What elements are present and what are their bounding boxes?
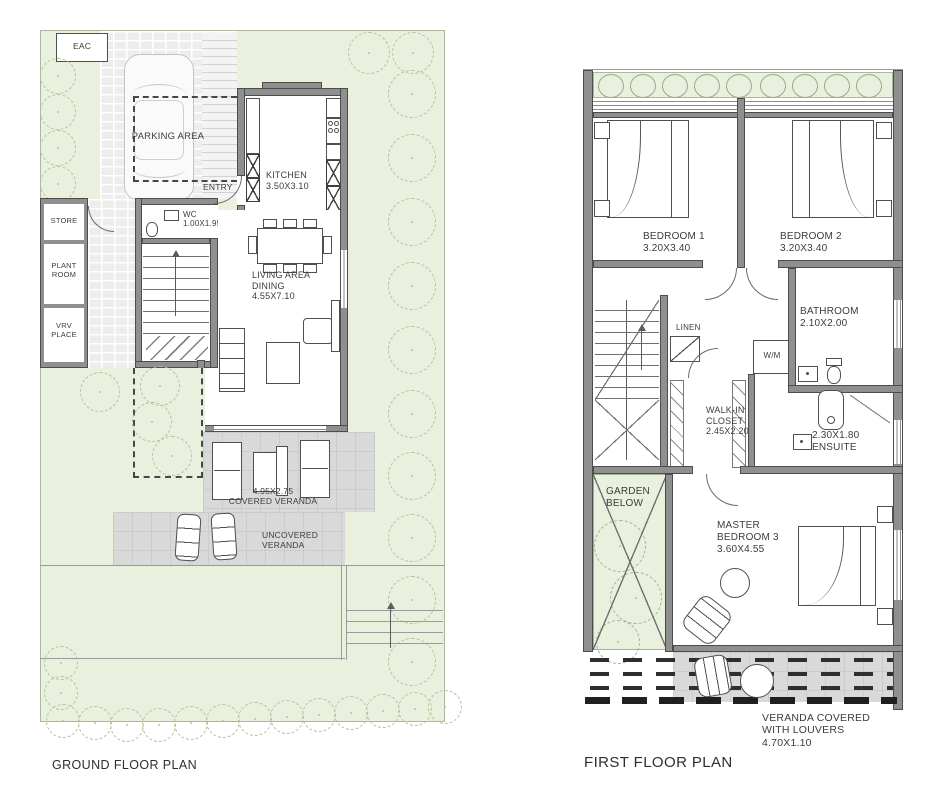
tree-icon (40, 58, 76, 94)
ff-bedroom-divider-wall (737, 98, 745, 268)
wm-label: W/M (757, 351, 787, 360)
louver-dashes (590, 658, 893, 662)
veranda-chair-icon (693, 653, 733, 698)
veranda-louvers-label: VERANDA COVERED WITH LOUVERS4.70X1.10 (762, 712, 887, 749)
tree-icon (388, 326, 436, 374)
tree-icon (388, 70, 436, 118)
louver-edge-dashes (585, 697, 897, 704)
living-south-glass (214, 426, 326, 431)
hob-burner (328, 121, 333, 126)
eac-label: EAC (56, 41, 108, 51)
first-floor-title: FIRST FLOOR PLAN (584, 754, 733, 771)
bed-foot-line (671, 121, 672, 217)
ff-stair-flight-line (595, 300, 659, 400)
kitchen-fridge-icon (326, 160, 341, 186)
parking-area-label: PARKING AREA (120, 131, 216, 142)
terrace-edge-line2 (40, 658, 345, 659)
shrub-icon (630, 74, 656, 98)
armchair-line (302, 468, 328, 469)
ff-hall-wall (593, 260, 703, 268)
shrub-icon (856, 74, 882, 98)
tree-icon (388, 390, 436, 438)
ensuite-window (894, 420, 902, 464)
nightstand-icon (876, 200, 892, 217)
master-north-wall2 (740, 466, 903, 474)
bedroom1-label: BEDROOM 13.20X3.40 (643, 231, 723, 255)
tree-icon (142, 708, 176, 742)
tree-icon (40, 130, 76, 166)
kitchen-west-wall (237, 88, 245, 176)
master-bedroom-label: MASTER BEDROOM 33.60X4.55 (717, 520, 799, 555)
bed-foot-line (809, 121, 810, 217)
wing-west-wall (135, 198, 142, 368)
outdoor-stair-arrow (390, 608, 391, 648)
floor-plan-sheet: EAC PARKING AREA STORE PLANT ROOM VRV PL… (0, 0, 941, 787)
tree-icon (80, 372, 120, 412)
ground-floor-title: GROUND FLOOR PLAN (52, 758, 197, 772)
nightstand-icon (594, 122, 610, 139)
ensuite-label: 2.30X1.80ENSUITE (812, 430, 892, 454)
dining-table-icon (257, 228, 323, 264)
nightstand-icon (877, 506, 893, 523)
plant-room-label: PLANT ROOM (46, 262, 82, 280)
kitchen-counter-right2 (326, 144, 341, 160)
lounger-icon (174, 513, 201, 562)
dining-chair-icon (263, 219, 277, 228)
tree-icon (302, 698, 336, 732)
master-door-arc-icon (706, 474, 738, 506)
shrub-icon (694, 74, 720, 98)
tree-icon (46, 704, 80, 738)
understair-hatch (146, 336, 208, 360)
bathroom-sink-dot (806, 372, 809, 375)
kitchen-flue (262, 82, 322, 89)
wc-sink-icon (164, 210, 179, 221)
shower-corner-lines (850, 395, 890, 423)
bedroom2-label: BEDROOM 23.20X3.40 (780, 231, 860, 255)
linen-label: LINEN (676, 323, 716, 332)
uncovered-veranda-label: UNCOVERED VERANDA (262, 530, 342, 550)
wing-south-wall (135, 361, 218, 368)
bathroom-label: BATHROOM2.10X2.00 (800, 306, 885, 330)
toilet-icon (827, 366, 841, 384)
shrub-icon (760, 74, 786, 98)
master-north-wall (593, 466, 693, 474)
nightstand-icon (594, 200, 610, 217)
sofa-icon (219, 328, 245, 392)
tree-icon (40, 166, 76, 202)
tree-icon (152, 436, 192, 476)
armchair-line (214, 470, 240, 471)
bathtub-icon (818, 390, 844, 430)
tree-icon (366, 694, 400, 728)
ff-stair-winder (595, 400, 659, 460)
tv-bench-icon (331, 300, 340, 352)
shrub-icon (824, 74, 850, 98)
tree-icon (40, 94, 76, 130)
tree-icon (388, 514, 436, 562)
store-label: STORE (44, 217, 84, 226)
kitchen-counter-right (326, 98, 341, 118)
tree-icon (388, 198, 436, 246)
vrv-place-label: VRV PLACE (46, 322, 82, 340)
toilet-tank (826, 358, 842, 366)
kitchen-north-wall (237, 88, 348, 96)
entry-label: ENTRY (203, 182, 243, 192)
nightstand-icon (877, 608, 893, 625)
coffee-table-icon (266, 342, 300, 384)
stool-icon (720, 568, 750, 598)
ff-hall-wall2 (778, 260, 903, 268)
bathroom-window (894, 300, 902, 348)
covered-veranda-label: 4.95X2.75COVERED VERANDA (218, 486, 328, 506)
tree-icon (388, 134, 436, 182)
bed-head-line (860, 527, 861, 605)
tree-icon (388, 452, 436, 500)
garden-below-label: GARDEN BELOW (606, 486, 664, 510)
stair-east-wall (210, 238, 218, 368)
stairwell-east-wall (660, 295, 668, 480)
wardrobe-icon (670, 380, 684, 468)
living-dining-label: LIVING AREADINING4.55X7.10 (252, 270, 322, 302)
outdoor-stair-icon (347, 600, 443, 652)
kitchen-appliance-icon (326, 186, 341, 212)
bedroom2-door-arc-icon (746, 268, 778, 300)
ff-stair-arrow-head (638, 324, 646, 331)
tree-icon (206, 704, 240, 738)
veranda-round-table-icon (740, 664, 774, 698)
master-window (894, 530, 902, 600)
east-window (341, 250, 347, 308)
veranda-north-wall (673, 645, 903, 652)
tree-icon (334, 696, 368, 730)
bathtub-drain (827, 416, 835, 424)
dining-chair-icon (323, 236, 332, 254)
hob-burner (334, 128, 339, 133)
nightstand-icon (876, 122, 892, 139)
dining-chair-icon (303, 219, 317, 228)
tree-icon (398, 692, 432, 726)
outdoor-stair-arrow-head (387, 602, 395, 609)
shrub-icon (792, 74, 818, 98)
tree-icon (388, 262, 436, 310)
ff-stair-arrow (641, 330, 642, 370)
ff-left-wall (583, 70, 593, 652)
hob-burner (334, 121, 339, 126)
tree-icon (270, 700, 304, 734)
terrace-edge-line (40, 565, 445, 566)
kitchen-oven-icon (246, 154, 260, 178)
walkin-closet-label: WALK-IN CLOSET2.45X2.20 (706, 405, 764, 437)
tree-icon (392, 32, 434, 74)
shrub-icon (726, 74, 752, 98)
tree-icon (174, 706, 208, 740)
wing-north-wall (135, 198, 218, 205)
armchair-icon (303, 318, 333, 344)
kitchen-appliance-icon (246, 178, 260, 202)
lounger-icon (210, 512, 237, 561)
wc-toilet-icon (146, 222, 158, 237)
wc-divider-wall (142, 238, 210, 244)
ensuite-sink-dot (800, 440, 803, 443)
stair-side-line (341, 565, 342, 660)
ff-top-line (583, 69, 903, 70)
tree-icon (348, 32, 390, 74)
tree-icon (44, 646, 78, 680)
tree-icon (238, 702, 272, 736)
kitchen-label: KITCHEN3.50X3.10 (266, 170, 328, 191)
tree-icon (140, 366, 180, 406)
hob-burner (328, 128, 333, 133)
kitchen-counter-left (246, 98, 260, 154)
desk-chair-icon (680, 593, 735, 648)
stair-arrow-head (172, 250, 180, 257)
dining-chair-icon (248, 236, 257, 254)
tree-icon (110, 708, 144, 742)
dining-chair-icon (283, 219, 297, 228)
tree-icon (78, 706, 112, 740)
bathroom-west-wall (788, 268, 796, 392)
shrub-icon (662, 74, 688, 98)
stair-arrow (175, 256, 176, 316)
tree-icon (428, 690, 462, 724)
bathroom-south-wall (788, 385, 903, 393)
bedroom1-door-arc-icon (705, 268, 737, 300)
shrub-icon (598, 74, 624, 98)
garden-east-wall (665, 474, 673, 652)
